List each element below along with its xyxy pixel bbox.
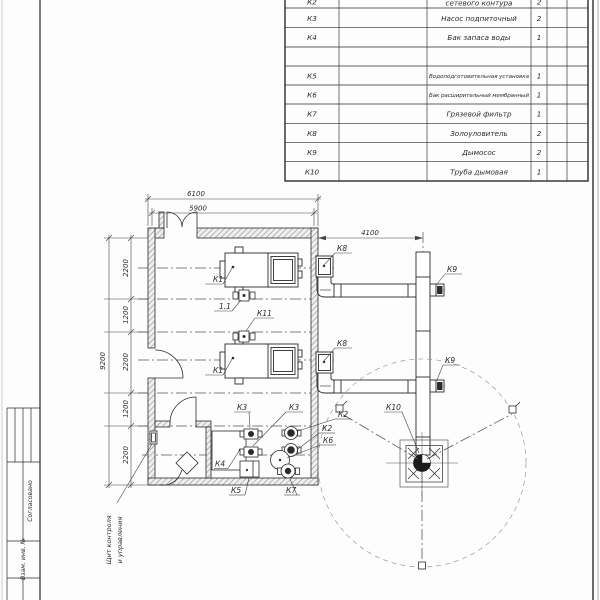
spec-row-k6: К6 Бак расширительный мембранный 1 (307, 91, 541, 100)
title-strip: Согласовано Взам. инв. № (7, 408, 40, 600)
smoke-exhauster-2 (430, 380, 444, 392)
dim-seg5: 2200 (122, 446, 130, 464)
qty-cell: 2 (537, 14, 542, 23)
name-cell: Труба дымовая (450, 168, 508, 177)
spec-row-k3: К3 Насос подпиточный 2 (307, 14, 542, 23)
pos-cell: К3 (307, 14, 317, 23)
label-control-panel-1: Щит контроля (105, 515, 113, 564)
anchor-2 (509, 406, 516, 413)
anchor-3 (419, 562, 426, 569)
pos-cell: К5 (307, 72, 317, 81)
dim-flue: 4100 (361, 229, 379, 237)
spec-row-k5: К5 Водоподготовительная установка 1 (307, 72, 541, 81)
dim-seg3: 2200 (122, 353, 130, 371)
label-k8-2: К8 (337, 339, 347, 348)
pos-cell: К8 (307, 129, 317, 138)
label-control-panel-2: и управления (116, 516, 124, 563)
pos-cell: К9 (307, 148, 317, 157)
qty-cell: 1 (537, 33, 542, 42)
label-k9-1: К9 (447, 265, 457, 274)
stamp-approved: Согласовано (27, 480, 34, 522)
spec-row-k7: К7 Грязевой фильтр 1 (307, 110, 541, 119)
label-k4: К4 (215, 460, 225, 469)
label-k9-2: К9 (445, 356, 455, 365)
spec-row-k4: К4 Бак запаса воды 1 (307, 33, 541, 42)
flue-system (316, 252, 444, 455)
qty-cell: 1 (537, 72, 542, 81)
spec-table: К2 сетевого контура 2 К3 Насос подпиточн… (285, 0, 588, 181)
qty-cell: 1 (537, 91, 542, 100)
pump-k11 (233, 331, 255, 342)
stamp-inv: Взам. инв. № (20, 538, 27, 580)
name-cell: Насос подпиточный (441, 14, 517, 23)
label-k5: К5 (231, 486, 241, 495)
qty-cell: 1 (537, 168, 542, 177)
dim-top-inner: 5900 (189, 205, 207, 213)
boiler-2 (220, 338, 302, 384)
door-symbols (155, 212, 197, 423)
dim-left-overall: 9200 (99, 352, 107, 370)
dim-seg4: 1200 (122, 400, 130, 418)
label-k2-2: К2 (322, 424, 332, 433)
dim-seg2: 1200 (122, 306, 130, 324)
qty-cell: 2 (537, 129, 542, 138)
label-k11: К11 (257, 309, 272, 318)
pos-cell: К6 (307, 91, 317, 100)
label-k10: К10 (386, 403, 401, 412)
water-treatment-k5 (240, 461, 259, 477)
control-panel (150, 431, 157, 444)
equipment (150, 427, 301, 486)
qty-cell: 2 (537, 148, 542, 157)
spec-row-k2: К2 сетевого контура 2 (307, 0, 542, 8)
drawing-sheet: Согласовано Взам. инв. № (0, 0, 600, 600)
name-cell: Бак запаса воды (447, 33, 511, 42)
label-k3-2: К3 (289, 403, 299, 412)
pos-cell: К4 (307, 33, 317, 42)
name-cell: Золоуловитель (450, 129, 508, 138)
pos-cell: К7 (307, 110, 317, 119)
name-cell: сетевого контура (446, 0, 513, 8)
spec-row-k8: К8 Золоуловитель 2 (307, 129, 542, 138)
label-k1-1: К1 (213, 275, 223, 284)
pos-cell: К2 (307, 0, 317, 7)
smoke-exhauster-1 (430, 284, 444, 296)
qty-cell: 1 (537, 110, 542, 119)
name-cell: Водоподготовительная установка (429, 74, 530, 80)
label-k8-1: К8 (337, 244, 347, 253)
label-1-1: 1.1 (219, 302, 231, 311)
boiler-1 (220, 247, 302, 293)
dim-top-outer: 6100 (187, 190, 205, 198)
label-k6: К6 (323, 436, 333, 445)
name-cell: Грязевой фильтр (446, 110, 512, 119)
dim-seg1: 2200 (122, 259, 130, 277)
pos-cell: К10 (305, 168, 320, 177)
network-pump-k2-1 (282, 427, 301, 440)
boiler-room-plan: Согласовано Взам. инв. № (0, 0, 600, 600)
qty-cell: 2 (537, 0, 542, 7)
label-k3-1: К3 (237, 403, 247, 412)
name-cell: Дымосос (461, 148, 495, 157)
spec-row-k9: К9 Дымосос 2 (307, 148, 542, 157)
sheet-frame (2, 0, 598, 600)
name-cell: Бак расширительный мембранный (429, 93, 529, 99)
spec-row-k10: К10 Труба дымовая 1 (305, 168, 541, 177)
label-k7: К7 (286, 486, 296, 495)
label-k2-1: К2 (338, 410, 348, 419)
label-k1-2: К1 (213, 366, 223, 375)
